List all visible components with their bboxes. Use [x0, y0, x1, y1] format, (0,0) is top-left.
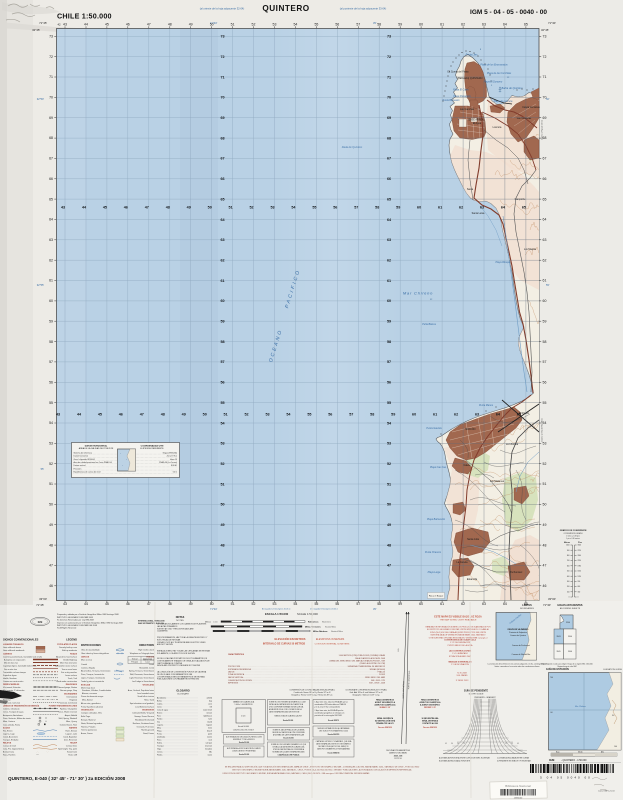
- svg-text:N.G.: N.G.: [398, 648, 400, 652]
- svg-text:Decreto 289/1930: Decreto 289/1930: [423, 726, 437, 729]
- svg-text:20: 20: [457, 743, 459, 745]
- svg-text:(al poniente de la hoja adyace: (al poniente de la hoja adyacente 33-04): [340, 7, 387, 11]
- svg-text:Telephone on Telegraph lines: Telephone on Telegraph lines: [129, 652, 154, 655]
- svg-text:Carretera pavimentada, transit: Carretera pavimentada, transitable todo …: [3, 655, 42, 658]
- svg-text:32-04: 32-04: [566, 622, 570, 624]
- svg-text:58: 58: [387, 340, 391, 344]
- svg-text:56: 56: [335, 602, 339, 606]
- svg-text:990: 990: [578, 581, 581, 583]
- svg-text:57: 57: [356, 23, 360, 27]
- svg-text:QUINTERO: QUINTERO: [262, 4, 309, 13]
- svg-text:Escala 50.000: Escala 50.000: [238, 726, 249, 728]
- svg-text:ARE NOT SHOWN: ARE NOT SHOWN: [157, 643, 173, 646]
- svg-text:Mine, Quarry: Mine, Quarry: [66, 720, 77, 723]
- svg-text:Principal: Principal: [131, 661, 138, 664]
- svg-text:FONO (56-2) 410 9300. PARA ADQ: FONO (56-2) 410 9300. PARA ADQUIRIR PROD…: [430, 631, 487, 634]
- svg-text:49: 49: [543, 523, 547, 527]
- svg-text:71: 71: [543, 75, 547, 79]
- svg-text:Transversal: Transversal: [143, 657, 152, 660]
- svg-text:farm: farm: [208, 718, 212, 721]
- svg-text:48: 48: [168, 23, 172, 27]
- svg-text:INTERVALO DE CURVAS 50 METROS: INTERVALO DE CURVAS 50 METROS: [263, 643, 306, 646]
- svg-text:Millas Náuticas: Millas Náuticas: [313, 630, 328, 633]
- svg-text:High trestle culvert: High trestle culvert: [138, 649, 154, 652]
- svg-text:GLOSSARY: GLOSSARY: [177, 693, 190, 696]
- svg-text:48: 48: [166, 205, 170, 209]
- svg-text:100: 100: [614, 746, 617, 748]
- svg-text:SUMAR 1° 25': SUMAR 1° 25': [379, 706, 391, 709]
- svg-text:Punta Mance: Punta Mance: [479, 404, 494, 407]
- svg-text:Estancilla: Estancilla: [467, 578, 478, 581]
- svg-text:59: 59: [387, 320, 391, 324]
- svg-text:5 04 05 0040 00: 5 04 05 0040 00: [540, 776, 592, 780]
- svg-text:2310: 2310: [578, 560, 582, 562]
- svg-text:Cerros: Cerros: [157, 751, 163, 754]
- svg-text:NUESTRA SALA DE VENTAS EN SANT: NUESTRA SALA DE VENTAS EN SANTA ISABEL 1…: [431, 634, 486, 637]
- svg-text:Puchuncaví: Puchuncaví: [510, 571, 523, 574]
- svg-text:61: 61: [221, 279, 225, 283]
- svg-text:Bajo: Bajo: [556, 751, 559, 753]
- svg-text:Nautical Miles: Nautical Miles: [331, 630, 343, 633]
- svg-text:Cerco, Tranque de agua: Cerco, Tranque de agua: [3, 711, 24, 714]
- svg-text:47: 47: [140, 413, 144, 417]
- svg-text:GUÍA DE PENDIENTE: GUÍA DE PENDIENTE: [464, 690, 489, 693]
- svg-text:International: International: [67, 695, 78, 698]
- svg-text:Punta Chascos: Punta Chascos: [425, 551, 442, 554]
- svg-text:(PLANO ALGORITMO 20 UTM): (PLANO ALGORITMO 20 UTM): [360, 662, 386, 665]
- svg-text:66: 66: [543, 177, 547, 181]
- svg-text:Troncal: Troncal: [132, 657, 138, 660]
- svg-text:71°45': 71°45': [39, 21, 47, 25]
- svg-text:33-04: 33-04: [568, 636, 572, 638]
- svg-text:63: 63: [482, 602, 486, 606]
- svg-text:Capa/ripio ligero, transitable: Capa/ripio ligero, transitable todo el a…: [3, 665, 36, 668]
- svg-text:Playa El Caleu: Playa El Caleu: [453, 89, 469, 92]
- svg-text:RELIEF: RELIEF: [70, 743, 78, 745]
- svg-text:300: 300: [567, 581, 570, 583]
- svg-text:57: 57: [221, 360, 225, 364]
- svg-text:58: 58: [370, 413, 374, 417]
- svg-text:32°45': 32°45': [541, 28, 549, 32]
- svg-text:33°00': 33°00': [548, 597, 556, 601]
- svg-text:66: 66: [221, 177, 225, 181]
- svg-text:Datum vertical: Datum vertical: [74, 464, 87, 467]
- svg-text:100: 100: [567, 591, 570, 593]
- svg-text:2640: 2640: [578, 555, 582, 557]
- svg-text:Álamos, cercanos: Álamos, cercanos: [81, 692, 97, 695]
- svg-text:mine: mine: [208, 728, 212, 730]
- svg-text:CLASIFICACIÓN DE ORDEN: CLASIFICACIÓN DE ORDEN: [228, 679, 252, 682]
- svg-text:Mina, Arenal: Mina, Arenal: [81, 699, 93, 702]
- svg-text:Mar Chileno: Mar Chileno: [575, 706, 587, 708]
- svg-text:Alto: Alto: [601, 750, 604, 753]
- svg-text:Sirgas (WGS-84): Sirgas (WGS-84): [163, 451, 178, 454]
- svg-text:33-03: 33-03: [556, 636, 560, 638]
- svg-text:57: 57: [356, 602, 360, 606]
- svg-text:52: 52: [249, 205, 253, 209]
- svg-text:59: 59: [398, 602, 402, 606]
- svg-text:Transitable en buen tiempo: Transitable en buen tiempo: [3, 671, 26, 674]
- svg-text:COORDENADAS UTM: COORDENADAS UTM: [141, 444, 164, 447]
- svg-text:rock: rock: [209, 739, 213, 742]
- svg-text:69: 69: [221, 116, 225, 120]
- svg-text:LÍNEAS DE TRANSMISIÓN DE ENERG: LÍNEAS DE TRANSMISIÓN DE ENERGÍA: [3, 704, 40, 707]
- svg-text:ASIENTO DEL MAPA: ASIENTO DEL MAPA: [389, 752, 407, 755]
- svg-text:Canal, Aqueduct: Canal, Aqueduct: [63, 736, 77, 739]
- svg-text:50: 50: [210, 602, 214, 606]
- svg-text:600: 600: [567, 565, 570, 567]
- svg-text:point: point: [208, 733, 212, 736]
- svg-text:65: 65: [543, 197, 547, 201]
- svg-text:69: 69: [543, 116, 547, 120]
- svg-text:Vía normal, Estación: Vía normal, Estación: [3, 686, 20, 689]
- svg-text:DATUM HORIZONTAL: DATUM HORIZONTAL: [85, 444, 108, 447]
- svg-text:Contour lines: Contour lines: [66, 745, 77, 748]
- svg-text:Escala 50.000: Escala 50.000: [283, 720, 293, 722]
- svg-text:WOODLAND: WOODLAND: [143, 683, 155, 686]
- svg-text:PARA MAYOR INFORMACIÓN SOBRE L: PARA MAYOR INFORMACIÓN SOBRE LOS PRODUCT…: [426, 626, 492, 629]
- svg-text:Tranque: Tranque: [157, 745, 164, 748]
- svg-text:62: 62: [461, 602, 465, 606]
- svg-text:50: 50: [543, 503, 547, 507]
- svg-text:Led Ledge in Greenhouse: Led Ledge in Greenhouse: [132, 680, 154, 683]
- svg-text:Alcantarillas, Terrazas, Inver: Alcantarillas, Terrazas, Invernáculo: [81, 670, 110, 673]
- svg-text:PENDIENTE - GRADIENT: PENDIENTE - GRADIENT: [474, 696, 496, 699]
- svg-text:56: 56: [221, 381, 225, 385]
- svg-text:DATUM: DATUM: [228, 671, 235, 674]
- svg-text:ADJOINING SHEETS: ADJOINING SHEETS: [560, 607, 581, 610]
- svg-text:AREA DE LA CALIDAD DE POSICIÓN: AREA DE LA CALIDAD DE POSICIÓN: [79, 447, 114, 450]
- svg-text:El Agua: El Agua: [473, 122, 482, 125]
- svg-text:Area, Orchard, Populated ruins: Area, Orchard, Populated ruins: [128, 689, 154, 692]
- svg-text:1 km²: 1 km²: [241, 715, 246, 718]
- svg-text:Cuartel: Cuartel: [81, 663, 88, 666]
- svg-text:CONVERSION GRAPH: CONVERSION GRAPH: [564, 532, 584, 535]
- svg-text:63: 63: [221, 238, 225, 242]
- svg-text:S EL PARED: S EL PARED: [457, 674, 469, 677]
- svg-text:59: 59: [391, 413, 395, 417]
- svg-text:REGIÓN DE VALPARAÍSO: REGIÓN DE VALPARAÍSO: [508, 628, 529, 631]
- svg-text:50: 50: [221, 503, 225, 507]
- svg-text:POWER TRANSMISSION LINES: POWER TRANSMISSION LINES: [49, 704, 78, 707]
- svg-text:LÍNEAS DEL NIVEL MEDIO DEL MAR: LÍNEAS DEL NIVEL MEDIO DEL MAR (ALTURAS)…: [329, 660, 386, 663]
- svg-text:airfield: airfield: [207, 697, 212, 700]
- svg-text:56: 56: [335, 23, 339, 27]
- svg-text:Punta Gaviota: Punta Gaviota: [426, 427, 442, 430]
- svg-text:62: 62: [221, 259, 225, 263]
- svg-text:48: 48: [161, 413, 165, 417]
- svg-text:48: 48: [49, 543, 53, 547]
- svg-text:52: 52: [221, 462, 225, 466]
- svg-text:63: 63: [387, 238, 391, 242]
- svg-text:62: 62: [454, 413, 458, 417]
- svg-text:54: 54: [293, 23, 297, 27]
- svg-text:Provincia de Valparaíso: Provincia de Valparaíso: [509, 631, 527, 634]
- svg-text:62: 62: [459, 205, 463, 209]
- svg-text:Millas Terrestres: Millas Terrestres: [305, 625, 322, 628]
- svg-text:Land Selected surface: Land Selected surface: [135, 705, 154, 708]
- svg-text:Playa Cau Cau: Playa Cau Cau: [430, 466, 447, 469]
- svg-text:Ligero, Tranque, Invernáculo: Ligero, Tranque, Invernáculo: [81, 677, 105, 680]
- svg-text:La Canela: La Canela: [457, 561, 469, 564]
- svg-text:Bosque, Matorral: Bosque, Matorral: [81, 719, 96, 722]
- svg-text:Santa: Santa: [467, 188, 474, 191]
- svg-text:Pies: Pies: [578, 542, 582, 544]
- svg-text:Sistema de referencia: Sistema de referencia: [74, 451, 93, 454]
- svg-text:Laguna: Laguna: [157, 725, 164, 727]
- svg-text:35': 35': [373, 607, 377, 611]
- svg-text:67: 67: [387, 157, 391, 161]
- svg-text:Pozo, Vertiente, Molino de vie: Pozo, Vertiente, Molino de viento: [3, 717, 31, 720]
- svg-text:Rada de Quintero: Rada de Quintero: [342, 145, 363, 149]
- svg-text:meadow: meadow: [205, 749, 213, 751]
- svg-text:Gran edificado denso: Gran edificado denso: [3, 646, 21, 649]
- svg-text:GUÍA DE ESTACIÓN: GUÍA DE ESTACIÓN: [546, 668, 569, 671]
- svg-text:Medio: Medio: [578, 751, 583, 753]
- svg-text:32°50': 32°50': [37, 97, 45, 101]
- svg-text:1° 25' DE DESVIACIÓN: 1° 25' DE DESVIACIÓN: [450, 641, 471, 644]
- svg-text:Playa Barlovento: Playa Barlovento: [427, 518, 446, 521]
- svg-text:46: 46: [119, 413, 123, 417]
- svg-text:RELIEVE: RELIEVE: [3, 743, 12, 745]
- svg-text:PSAD-56 (La Canoa): PSAD-56 (La Canoa): [159, 461, 177, 464]
- svg-text:Cota de agua: Cota de agua: [157, 709, 169, 712]
- svg-text:ESTE MAPA ES VISIBLE BAJO LUZ: ESTE MAPA ES VISIBLE BAJO LUZ ROJA: [434, 616, 482, 619]
- svg-text:58: 58: [375, 205, 379, 209]
- svg-text:Norte, Matorral aguadero: Norte, Matorral aguadero: [81, 722, 102, 725]
- svg-text:700: 700: [550, 677, 553, 679]
- svg-text:69: 69: [49, 116, 53, 120]
- svg-text:Pipeline, Oil pipeline: Pipeline, Oil pipeline: [60, 708, 77, 710]
- svg-text:65: 65: [522, 205, 526, 209]
- svg-text:SISTEMA DE REFERENCIA: SISTEMA DE REFERENCIA: [228, 668, 252, 671]
- svg-text:65: 65: [387, 197, 391, 201]
- svg-text:ZONA GEODÉSICA: ZONA GEODÉSICA: [228, 673, 245, 676]
- svg-text:1320: 1320: [578, 576, 582, 578]
- svg-text:Superficie ligera: Superficie ligera: [3, 674, 18, 677]
- svg-text:Playa de las Conchitas: Playa de las Conchitas: [487, 72, 512, 75]
- svg-text:Camino a Papudo 12 km: Camino a Papudo 12 km: [542, 120, 544, 140]
- svg-text:LEGEND: LEGEND: [66, 638, 77, 642]
- svg-text:Playa El Durazno: Playa El Durazno: [484, 81, 503, 84]
- svg-text:Equidistancia de curvas de niv: Equidistancia de curvas de nivel: [74, 471, 102, 474]
- svg-text:58: 58: [377, 23, 381, 27]
- svg-text:CARACTERÍSTICA: CARACTERÍSTICA: [228, 653, 245, 656]
- svg-text:33-06: 33-06: [568, 651, 572, 653]
- svg-text:49: 49: [49, 523, 53, 527]
- svg-text:57: 57: [49, 360, 53, 364]
- svg-text:25: 25: [511, 743, 513, 745]
- svg-text:73: 73: [387, 35, 391, 39]
- svg-text:Muro o cerco: Muro o cerco: [81, 658, 92, 661]
- svg-text:Track, Trail: Track, Trail: [68, 677, 78, 680]
- svg-text:Río, Estero: Río, Estero: [3, 730, 12, 733]
- svg-text:INSTRUCCIONES: INSTRUCCIONES: [81, 644, 101, 647]
- svg-text:3° DESV. 2013: 3° DESV. 2013: [456, 680, 469, 682]
- svg-text:Zona 19 Sur: Zona 19 Sur: [167, 455, 178, 458]
- svg-text:Campos cultivados, Viña: Campos cultivados, Viña: [81, 712, 103, 715]
- svg-text:60: 60: [417, 205, 421, 209]
- svg-text:71°40': 71°40': [210, 607, 218, 611]
- svg-text:800: 800: [567, 555, 570, 557]
- svg-text:DIRECCIÓN DE INSTITUTO GEOGRÁF: DIRECCIÓN DE INSTITUTO GEOGRÁFICO MILITA…: [223, 772, 370, 775]
- svg-text:32°55': 32°55': [37, 283, 45, 287]
- svg-text:stream: stream: [206, 712, 212, 715]
- svg-text:BOSCAJE: BOSCAJE: [81, 683, 91, 686]
- svg-text:55: 55: [314, 602, 318, 606]
- svg-text:63: 63: [49, 238, 53, 242]
- svg-text:Canal, Acueducto: Canal, Acueducto: [3, 736, 18, 739]
- svg-text:beach: beach: [207, 731, 212, 733]
- svg-text:56: 56: [387, 381, 391, 385]
- svg-text:Gran edificado moderado: Gran edificado moderado: [3, 649, 24, 652]
- svg-text:PROYECCIÓN: PROYECCIÓN: [228, 665, 241, 668]
- svg-text:65: 65: [517, 413, 521, 417]
- svg-text:1650: 1650: [578, 571, 582, 573]
- svg-text:Aeropuerto, Aeródromo: Aeropuerto, Aeródromo: [3, 714, 23, 717]
- svg-text:Tendal y pato o invernáculo: Tendal y pato o invernáculo: [81, 680, 104, 683]
- svg-text:45: 45: [105, 23, 109, 27]
- svg-text:64: 64: [503, 23, 507, 27]
- svg-text:53: 53: [273, 23, 277, 27]
- svg-text:Metros: Metros: [205, 620, 211, 623]
- svg-text:49: 49: [187, 205, 191, 209]
- svg-text:330: 330: [578, 591, 581, 593]
- svg-text:35': 35': [373, 21, 377, 25]
- svg-text:Faro: Faro: [157, 715, 161, 718]
- svg-text:32°45': 32°45': [32, 28, 40, 32]
- svg-text:Sheepfold, Corral: Sheepfold, Corral: [139, 666, 154, 669]
- svg-text:56: 56: [543, 381, 547, 385]
- svg-text:70: 70: [49, 96, 53, 100]
- svg-text:Playa de Loncura: Playa de Loncura: [494, 100, 513, 103]
- svg-text:Obra tubería y líneas telegráf: Obra tubería y líneas telegráficas: [81, 652, 109, 655]
- svg-text:Die seguido l'imita lignes 20.: Die seguido l'imita lignes 20.05 w: [310, 608, 339, 611]
- svg-text:65: 65: [221, 197, 225, 201]
- svg-text:CONTOUR INTERVAL 50 METERS: CONTOUR INTERVAL 50 METERS: [315, 643, 350, 646]
- svg-text:51: 51: [49, 482, 53, 486]
- svg-text:65: 65: [49, 197, 53, 201]
- svg-text:NOTAS: NOTAS: [176, 616, 185, 619]
- svg-text:Huella, Sendero: Huella, Sendero: [3, 677, 17, 680]
- svg-text:61: 61: [440, 602, 444, 606]
- svg-text:54: 54: [293, 602, 297, 606]
- svg-text:POPULATED PLACES: POPULATED PLACES: [57, 643, 77, 646]
- svg-text:46: 46: [124, 205, 128, 209]
- svg-text:Spot elevations and geodetic: Spot elevations and geodetic: [130, 702, 154, 705]
- svg-text:60: 60: [49, 299, 53, 303]
- svg-text:71°30': 71°30': [543, 603, 551, 607]
- svg-text:46: 46: [387, 584, 391, 588]
- svg-text:47: 47: [147, 602, 151, 606]
- svg-text:2970: 2970: [578, 550, 582, 552]
- svg-text:CHILE 1:50.000: CHILE 1:50.000: [57, 12, 112, 21]
- svg-text:71: 71: [387, 75, 391, 79]
- svg-text:51: 51: [229, 205, 233, 209]
- svg-text:60: 60: [543, 299, 547, 303]
- svg-text:900: 900: [567, 550, 570, 552]
- svg-text:44: 44: [84, 602, 88, 606]
- svg-text:55: 55: [49, 401, 53, 405]
- svg-text:Playa de los Enamorados: Playa de los Enamorados: [480, 64, 508, 67]
- svg-text:Laguna, Lago: Laguna, Lago: [3, 734, 15, 736]
- svg-text:30: 30: [451, 743, 453, 745]
- svg-text:Precisión: Precisión: [74, 467, 82, 470]
- svg-text:Comuna de Puchuncaví: Comuna de Puchuncaví: [512, 645, 531, 647]
- svg-text:Escala 9888215: Escala 9888215: [328, 753, 340, 755]
- svg-text:Camino en construcción: Camino en construcción: [3, 680, 23, 683]
- svg-text:Quebrada: Quebrada: [157, 736, 166, 739]
- svg-text:53: 53: [49, 442, 53, 446]
- svg-text:Sand, Dune: Sand, Dune: [67, 752, 77, 754]
- svg-text:Swamp, Dunes/Terrace: Swamp, Dunes/Terrace: [134, 715, 154, 718]
- svg-text:Aeródromo: Aeródromo: [157, 697, 166, 700]
- svg-text:SIGNOS CONVENCIONALES: SIGNOS CONVENCIONALES: [3, 638, 39, 642]
- svg-text:71°45': 71°45': [36, 603, 44, 607]
- svg-text:Cota, Pto. trigonométrico: Cota, Pto. trigonométrico: [3, 748, 24, 751]
- svg-text:All-weather, hard surface: All-weather, hard surface: [56, 655, 77, 658]
- svg-text:(al oriente de la hoja adyacen: (al oriente de la hoja adyacente 32-04): [200, 7, 245, 11]
- svg-text:51: 51: [221, 482, 225, 486]
- svg-text:700: 700: [567, 560, 570, 562]
- svg-text:63: 63: [482, 23, 486, 27]
- svg-text:52: 52: [543, 462, 547, 466]
- svg-text:Escala 50.000: Escala 50.000: [239, 754, 249, 756]
- svg-text:Punta Balneario: Punta Balneario: [442, 99, 460, 102]
- svg-text:61: 61: [433, 413, 437, 417]
- svg-text:PUBLICACIONES CON PARÁMETROS F: PUBLICACIONES CON PARÁMETROS FIRM IGM: [157, 678, 199, 681]
- svg-text:CONTACTE AL IGM: CONTACTE AL IGM: [422, 722, 438, 725]
- svg-text:Sand hills in texture: Sand hills in texture: [138, 695, 155, 698]
- svg-text:52: 52: [252, 602, 256, 606]
- svg-text:50: 50: [49, 503, 53, 507]
- svg-text:61: 61: [438, 205, 442, 209]
- svg-text:Mina, Cantera: Mina, Cantera: [3, 720, 16, 723]
- svg-text:Al seguido la limita lignes 20: Al seguido la limita lignes 20.05 w: [262, 608, 291, 611]
- svg-text:71: 71: [221, 75, 225, 79]
- svg-text:CERCOS: CERCOS: [81, 656, 90, 658]
- svg-text:Caleta Ventanas: Caleta Ventanas: [522, 106, 540, 109]
- svg-text:62: 62: [387, 259, 391, 263]
- svg-text:55: 55: [221, 401, 225, 405]
- svg-text:61: 61: [49, 279, 53, 283]
- svg-text:55: 55: [543, 401, 547, 405]
- svg-text:Pozos de absorción mayor: Pozos de absorción mayor: [81, 695, 104, 698]
- svg-text:HORCÓN: HORCÓN: [465, 428, 476, 431]
- svg-text:Autopista con separación: Autopista con separación: [3, 659, 25, 662]
- svg-text:LAS CONSTRUCCIONES: LAS CONSTRUCCIONES: [449, 650, 472, 653]
- svg-text:46: 46: [543, 584, 547, 588]
- svg-text:49: 49: [221, 523, 225, 527]
- svg-text:66: 66: [49, 177, 53, 181]
- svg-text:56: 56: [328, 413, 332, 417]
- svg-text:55: 55: [314, 23, 318, 27]
- svg-text:SIRGAS (WGS-84): SIRGAS (WGS-84): [370, 668, 386, 671]
- svg-text:Bello Pago: Bello Pago: [81, 716, 90, 718]
- svg-text:52: 52: [387, 462, 391, 466]
- svg-text:200: 200: [567, 586, 570, 588]
- svg-text:ravine: ravine: [207, 736, 212, 739]
- svg-text:Light, Reservoir, Greenhouse: Light, Reservoir, Greenhouse: [129, 677, 154, 680]
- svg-text:64: 64: [503, 602, 507, 606]
- svg-text:FENCE AND PROPERTY LINES ARE N: FENCE AND PROPERTY LINES ARE NOT SHOWN: [157, 664, 201, 667]
- svg-text:52: 52: [49, 462, 53, 466]
- svg-text:- QUINTERO - 1:50.000: - QUINTERO - 1:50.000: [561, 759, 587, 762]
- svg-text:island: island: [207, 722, 212, 724]
- svg-text:48: 48: [543, 543, 547, 547]
- svg-text:CADA CUADRÍCULA DE NIVEL 2008: CADA CUADRÍCULA DE NIVEL 2008: [355, 657, 385, 660]
- svg-text:47: 47: [221, 564, 225, 568]
